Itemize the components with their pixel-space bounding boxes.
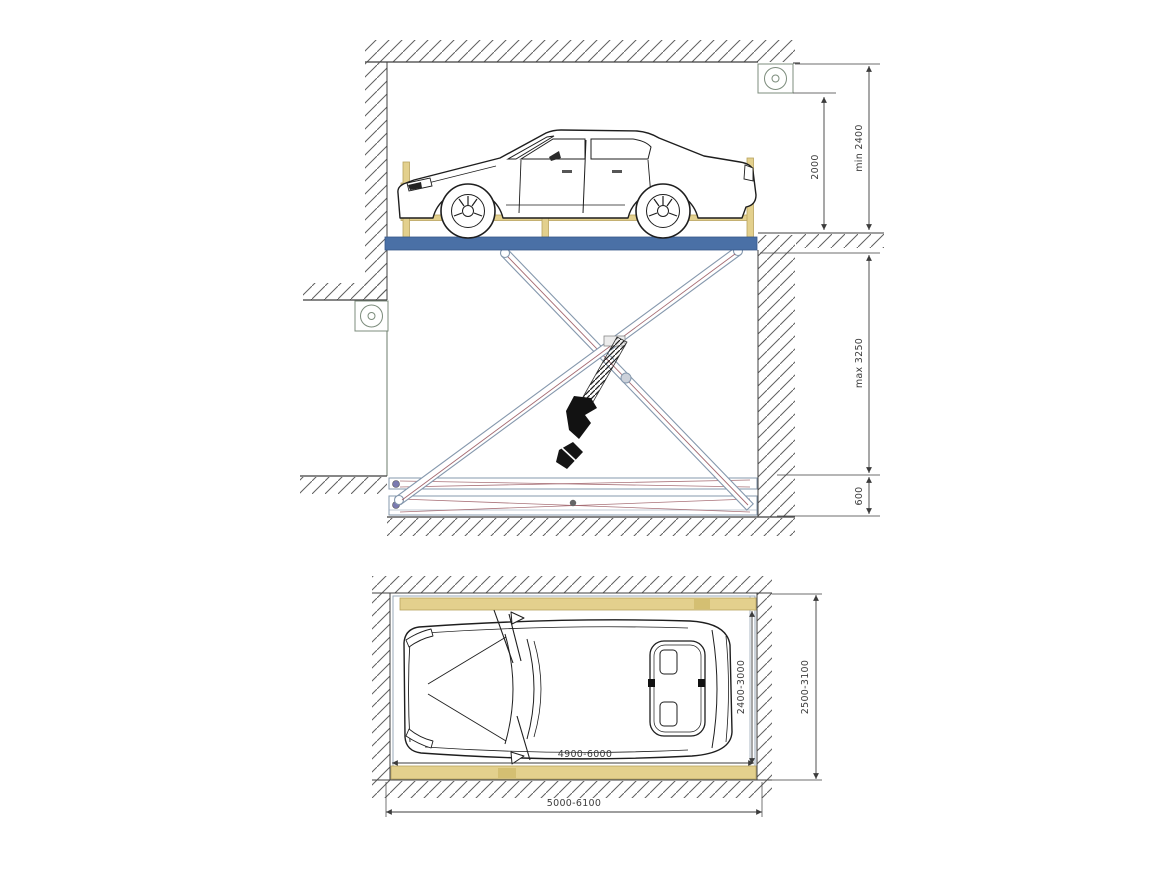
dim-base-label: 600 (854, 486, 865, 505)
base-frame (389, 478, 757, 515)
car-top-view (404, 610, 732, 764)
dim-travel-label: max 3250 (854, 338, 865, 388)
center-pivot (621, 373, 631, 383)
car-hinge-right (698, 679, 705, 687)
car-door-handle-front (562, 170, 572, 173)
car-rear-window (591, 139, 651, 159)
platform-rail-bottom (391, 766, 756, 779)
dim-headroom-label: min 2400 (854, 124, 865, 172)
scissor-lift-technical-drawing: 2000 min 2400 max 3250 600 (0, 0, 1168, 880)
plan-wall-hatch-bottom (372, 781, 772, 798)
dim-pit-length-label: 5000-6100 (547, 798, 601, 809)
drawing-svg: 2000 min 2400 max 3250 600 (0, 0, 1168, 880)
car-taillight (744, 165, 753, 181)
dim-platform-width-label: 2400-3000 (736, 660, 747, 714)
left-wall-hatch (365, 62, 387, 300)
car-headrest-bottom (660, 702, 677, 726)
dim-clearance-label: 2000 (810, 154, 821, 179)
dim-pit-width-label: 2500-3100 (800, 660, 811, 714)
mid-ledge-hatch (303, 283, 387, 300)
ceiling-fixture-icon (758, 64, 793, 93)
plan-wall-hatch-right (757, 593, 772, 781)
ceiling-slab-hatch (365, 40, 795, 62)
plan-wall-hatch-top (372, 576, 772, 593)
car-door-handle-rear (612, 170, 622, 173)
plan-view: 4900-6000 5000-6100 2400-3000 2500-3100 (372, 576, 822, 817)
left-floor-hatch (300, 477, 387, 494)
car-hinge-left (648, 679, 655, 687)
car-headrest-top (660, 650, 677, 674)
base-pivot-left-top (393, 481, 400, 488)
car-front-wheel (441, 184, 495, 238)
pit-floor-hatch (387, 518, 795, 536)
dim-platform-length-label: 4900-6000 (558, 749, 612, 760)
ground-right-hatch (796, 234, 884, 248)
plan-wall-hatch-left (372, 593, 390, 781)
lift-platform (385, 237, 757, 250)
scissor-mechanism (395, 247, 754, 511)
wall-fixture-icon (355, 301, 388, 331)
car-rear-wheel (636, 184, 690, 238)
car-side-view (398, 130, 756, 238)
base-pivot-center (570, 500, 576, 506)
watermark-blob-upper (566, 396, 597, 439)
platform-rail-top-joint (694, 599, 710, 609)
platform-rail-bottom-joint (498, 768, 516, 778)
side-view: 2000 min 2400 max 3250 600 (300, 40, 884, 536)
